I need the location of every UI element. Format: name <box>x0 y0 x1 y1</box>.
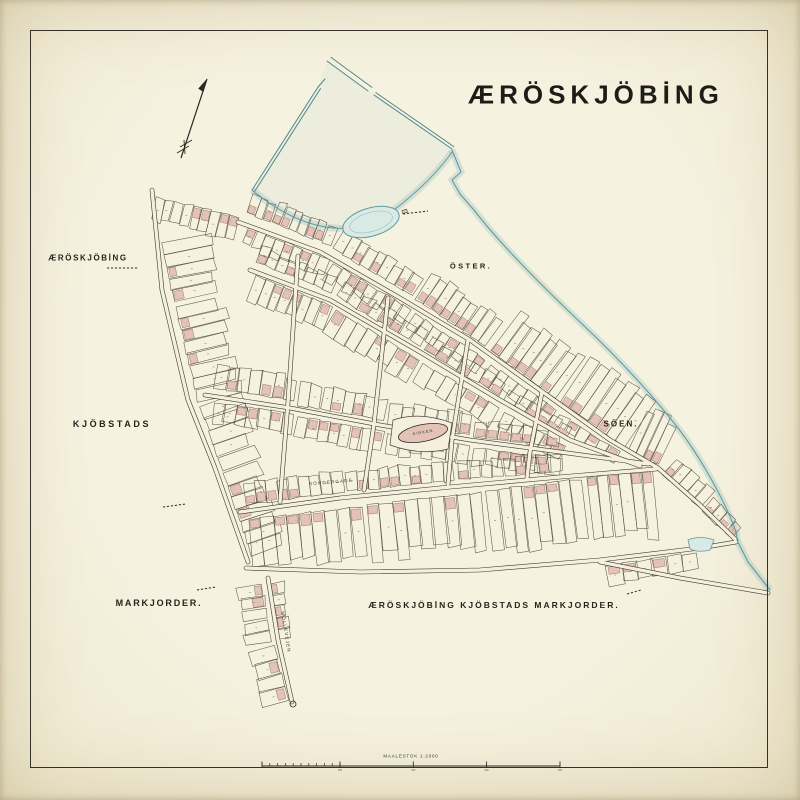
label-bottom-caption: ÆRÖSKJÖBİNG KJÖBSTADS MARKJORDER. <box>368 600 619 610</box>
label-kjobstads: KJÖBSTADS <box>73 419 151 429</box>
label-soen: SÖEN. <box>604 420 639 429</box>
map-title: ÆRÖSKJÖBİNG <box>468 80 724 111</box>
label-west-town: ÆRÖSKJÖBİNG <box>48 254 127 263</box>
label-oster: ÖSTER. <box>450 262 492 271</box>
map-frame-border <box>30 30 768 768</box>
scale-bar-caption: MAALESTOK 1:2000 <box>383 754 438 759</box>
map-sheet: ÆRÖSKJÖBİNG ÆRÖSKJÖBİNG ÖSTER. KJÖBSTADS… <box>0 0 800 800</box>
label-markjorder: MARKJORDER. <box>116 598 203 608</box>
